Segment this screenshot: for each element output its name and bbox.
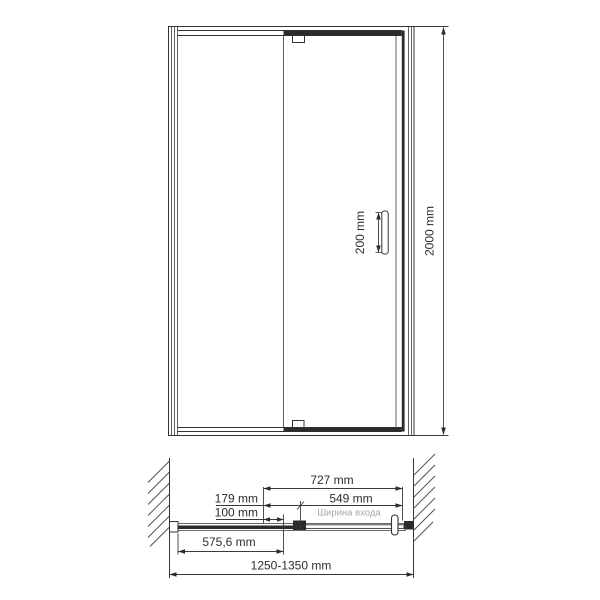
left-wall [148, 458, 170, 578]
pivot-offset-label: 179 mm [215, 492, 258, 506]
dimension-575: 575,6 mm [178, 535, 284, 554]
bottom-clip [293, 421, 305, 428]
top-plan-view: 727 mm 179 mm 549 mm Ширина входа 100 mm… [148, 454, 435, 578]
dimension-100: 100 mm [215, 506, 284, 522]
bottom-rail [178, 428, 402, 432]
right-wall [414, 454, 436, 578]
door-width-label: 727 mm [310, 473, 353, 487]
handle-dimension-label: 200 mm [353, 211, 367, 254]
overlap-label: 100 mm [215, 506, 258, 520]
left-wall-mount-profile [170, 522, 179, 533]
technical-drawing-canvas: 200 mm 2000 mm [0, 0, 600, 600]
height-dimension-label: 2000 mm [423, 206, 437, 256]
dimension-2000: 2000 mm [415, 27, 449, 436]
dimension-727: 727 mm [264, 473, 403, 491]
dimension-200: 200 mm [353, 211, 381, 254]
fixed-glass-label: 575,6 mm [202, 535, 255, 549]
entrance-caption-label: Ширина входа [317, 508, 381, 519]
frame-outline [169, 27, 415, 436]
front-elevation-view: 200 mm 2000 mm [169, 27, 449, 436]
fixed-glass-panel [178, 526, 301, 530]
door-handle-plan [392, 515, 399, 535]
right-wall-profile [396, 27, 412, 436]
entrance-width-label: 549 mm [329, 492, 372, 506]
pivot-block [293, 521, 306, 531]
top-clip [293, 36, 305, 43]
shower-door-drawing: 200 mm 2000 mm [0, 0, 600, 600]
top-rail [178, 31, 402, 36]
total-range-label: 1250-1350 mm [251, 559, 332, 573]
left-wall-profile [172, 27, 178, 436]
pivot-door-panel [301, 525, 405, 529]
dimension-total-range: 1250-1350 mm [170, 559, 414, 577]
right-wall-mount-profile [404, 521, 414, 530]
